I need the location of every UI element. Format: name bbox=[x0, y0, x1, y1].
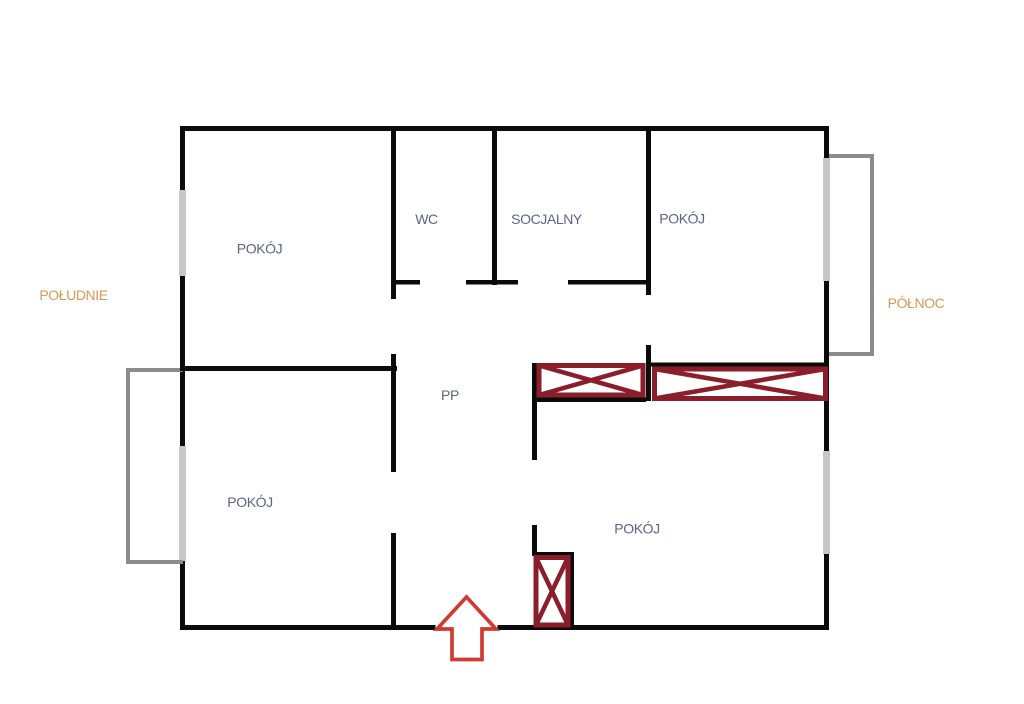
svg-text:POKÓJ: POKÓJ bbox=[237, 241, 282, 257]
svg-text:PÓŁNOC: PÓŁNOC bbox=[888, 295, 945, 311]
svg-text:WC: WC bbox=[415, 211, 438, 227]
svg-text:SOCJALNY: SOCJALNY bbox=[511, 211, 583, 227]
svg-text:POŁUDNIE: POŁUDNIE bbox=[39, 287, 107, 303]
svg-text:PP: PP bbox=[441, 387, 459, 403]
svg-text:POKÓJ: POKÓJ bbox=[614, 521, 659, 537]
svg-text:POKÓJ: POKÓJ bbox=[659, 211, 704, 227]
svg-text:POKÓJ: POKÓJ bbox=[227, 494, 272, 510]
